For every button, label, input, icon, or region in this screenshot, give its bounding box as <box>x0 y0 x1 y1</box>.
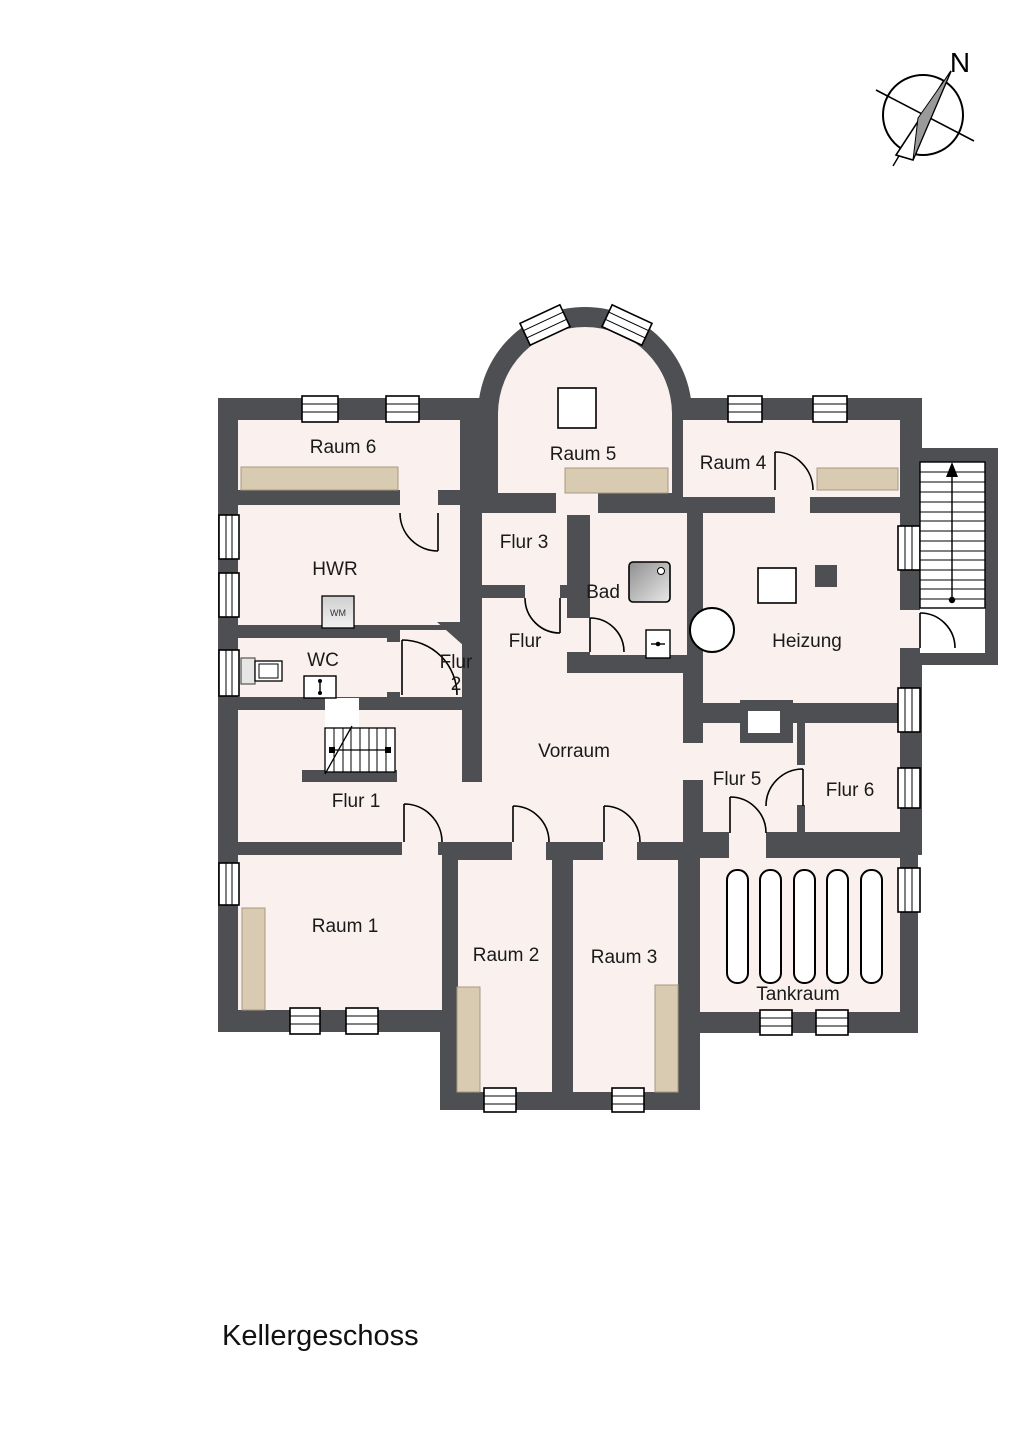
shaft-opening <box>325 698 359 730</box>
page-title: Kellergeschoss <box>222 1320 419 1353</box>
wc-sink <box>304 676 336 698</box>
room-label-flur3: Flur 3 <box>500 532 549 554</box>
window <box>219 573 239 617</box>
room-label-flur2: Flur 2 <box>433 652 479 696</box>
window <box>302 396 338 422</box>
bad-sink <box>646 630 670 658</box>
raum1-radiator <box>242 908 265 1010</box>
room-label-flur5: Flur 5 <box>713 769 762 791</box>
compass: N <box>876 47 974 166</box>
window <box>346 1008 378 1034</box>
room-label-flur1: Flur 1 <box>332 791 381 813</box>
window <box>219 650 239 696</box>
raum2-radiator <box>457 987 480 1092</box>
window <box>290 1008 320 1034</box>
window <box>898 768 920 808</box>
floorplan-drawing: WM <box>0 0 1018 1440</box>
window <box>484 1088 516 1112</box>
room-label-heizung: Heizung <box>772 631 842 653</box>
raum6-sideboard <box>241 467 398 490</box>
heizung-boiler <box>690 608 734 652</box>
room-label-vorraum: Vorraum <box>538 741 610 763</box>
exterior-stairs <box>920 462 985 608</box>
window <box>612 1088 644 1112</box>
raum5-chimney-shaft <box>558 388 596 428</box>
room-label-bad: Bad <box>586 582 620 604</box>
room-label-raum1: Raum 1 <box>312 916 379 938</box>
window <box>898 526 920 570</box>
washing-machine-label: WM <box>330 608 346 618</box>
room-label-wc: WC <box>307 650 339 672</box>
room-label-hwr: HWR <box>312 559 357 581</box>
window <box>898 688 920 732</box>
floorplan-page: WM <box>0 0 1018 1440</box>
room-label-raum2: Raum 2 <box>473 945 540 967</box>
raum3-radiator <box>655 985 678 1092</box>
window <box>728 396 762 422</box>
heizung-chimney-shaft <box>758 568 796 603</box>
room-heizung-floor <box>703 513 900 703</box>
window <box>898 868 920 912</box>
room-flur6-floor <box>805 723 900 832</box>
window <box>760 1010 792 1035</box>
window <box>816 1010 848 1035</box>
chimney-solid <box>815 565 837 587</box>
flur5-shaft <box>748 711 780 733</box>
window <box>386 396 419 422</box>
window <box>219 863 239 905</box>
compass-north-label: N <box>950 47 970 78</box>
room-label-flur: Flur <box>509 631 542 653</box>
toilet <box>241 658 282 684</box>
compass-needle-shade <box>913 71 951 160</box>
washing-machine: WM <box>322 596 354 628</box>
room-label-raum6: Raum 6 <box>310 437 377 459</box>
raum5-sideboard <box>565 468 668 493</box>
room-label-tankraum: Tankraum <box>756 984 839 1006</box>
room-label-raum3: Raum 3 <box>591 947 658 969</box>
interior-stairs <box>325 726 395 774</box>
shower <box>629 562 670 602</box>
room-label-flur6: Flur 6 <box>826 780 875 802</box>
raum4-sideboard <box>817 468 898 490</box>
window <box>219 515 239 559</box>
window <box>813 396 847 422</box>
room-label-raum5: Raum 5 <box>550 444 617 466</box>
room-label-raum4: Raum 4 <box>700 453 767 475</box>
